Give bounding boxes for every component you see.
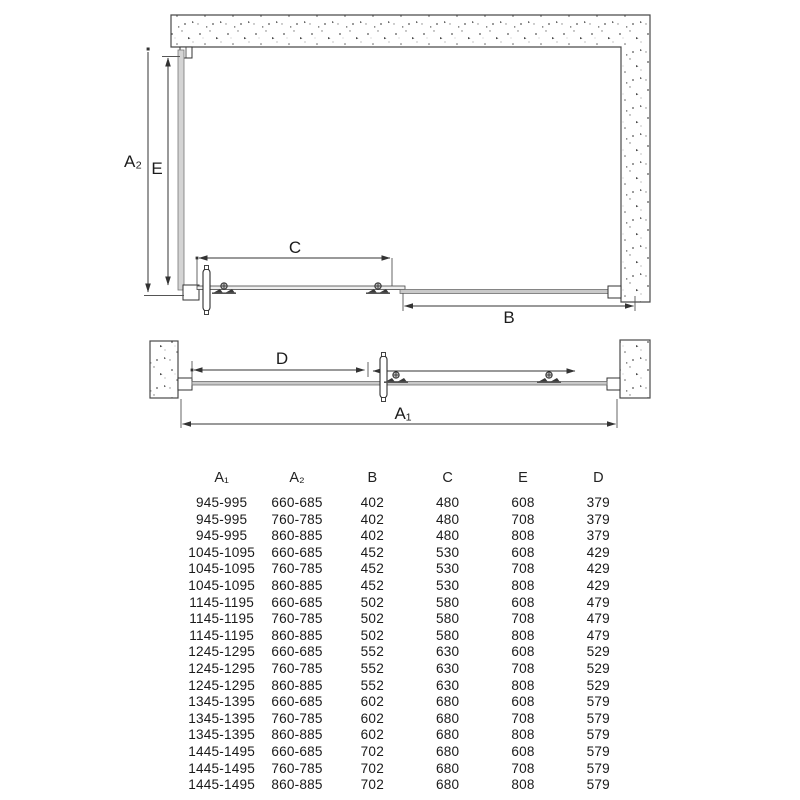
table-row: 1045-1095860-885452530808429: [184, 578, 636, 595]
table-body: 945-995660-685402480608379945-995760-785…: [184, 495, 636, 794]
table-cell: 860-885: [259, 777, 334, 794]
table-cell: 702: [335, 744, 410, 761]
table-cell: 579: [561, 727, 636, 744]
dim-tick: [191, 369, 194, 372]
table-cell: 860-885: [259, 578, 334, 595]
table-cell: 1445-1495: [184, 744, 259, 761]
table-row: 945-995860-885402480808379: [184, 528, 636, 545]
door-handle-icon: [380, 353, 387, 402]
table-row: 1245-1295860-885552630808529: [184, 678, 636, 695]
table-cell: 1445-1495: [184, 777, 259, 794]
table-row: 1245-1295760-785552630708529: [184, 661, 636, 678]
table-cell: 808: [485, 777, 560, 794]
table-cell: 1245-1295: [184, 678, 259, 695]
table-cell: 945-995: [184, 495, 259, 512]
table-cell: 1345-1395: [184, 711, 259, 728]
table-row: 1445-1495660-685702680608579: [184, 744, 636, 761]
table-cell: 552: [335, 644, 410, 661]
table-cell: 452: [335, 545, 410, 562]
table-cell: 452: [335, 561, 410, 578]
table-cell: 1045-1095: [184, 545, 259, 562]
table-cell: 808: [485, 727, 560, 744]
table-cell: 429: [561, 545, 636, 562]
wall-profile-left: [178, 378, 192, 390]
table-cell: 479: [561, 628, 636, 645]
table-cell: 580: [410, 628, 485, 645]
table-cell: 680: [410, 727, 485, 744]
table-cell: 630: [410, 661, 485, 678]
table-row: 1445-1495860-885702680808579: [184, 777, 636, 794]
table-cell: 660-685: [259, 595, 334, 612]
table-row: 1345-1395660-685602680608579: [184, 694, 636, 711]
table-row: 1145-1195760-785502580708479: [184, 611, 636, 628]
table-cell: 530: [410, 578, 485, 595]
table-row: 1145-1195660-685502580608479: [184, 595, 636, 612]
table-cell: 579: [561, 744, 636, 761]
table-cell: 680: [410, 777, 485, 794]
table-cell: 402: [335, 512, 410, 529]
table-cell: 602: [335, 694, 410, 711]
table-row: 1245-1295660-685552630608529: [184, 644, 636, 661]
table-cell: 1045-1095: [184, 561, 259, 578]
table-cell: 680: [410, 744, 485, 761]
table-cell: 702: [335, 761, 410, 778]
table-cell: 480: [410, 512, 485, 529]
table-cell: 1245-1295: [184, 644, 259, 661]
table-cell: 1345-1395: [184, 694, 259, 711]
table-cell: 660-685: [259, 744, 334, 761]
table-cell: 708: [485, 761, 560, 778]
table-cell: 402: [335, 495, 410, 512]
table-cell: 808: [485, 528, 560, 545]
table-cell: 580: [410, 611, 485, 628]
table-cell: 379: [561, 528, 636, 545]
table-cell: 602: [335, 711, 410, 728]
table-header-row: A₁A₂BCED: [184, 468, 636, 488]
table-cell: 708: [485, 711, 560, 728]
table-cell: 708: [485, 512, 560, 529]
table-cell: 808: [485, 678, 560, 695]
table-cell: 680: [410, 694, 485, 711]
table-cell: 480: [410, 528, 485, 545]
table-cell: 760-785: [259, 561, 334, 578]
dim-label-e: E: [151, 159, 162, 178]
table-cell: 945-995: [184, 512, 259, 529]
table-cell: 760-785: [259, 512, 334, 529]
table-header-cell: B: [335, 470, 410, 486]
table-row: 1145-1195860-885502580808479: [184, 628, 636, 645]
table-header-cell: A₂: [259, 470, 334, 486]
table-cell: 480: [410, 495, 485, 512]
table-cell: 860-885: [259, 678, 334, 695]
table-row: 945-995760-785402480708379: [184, 512, 636, 529]
table-cell: 529: [561, 644, 636, 661]
table-cell: 860-885: [259, 528, 334, 545]
table-cell: 479: [561, 611, 636, 628]
table-cell: 580: [410, 595, 485, 612]
table-cell: 760-785: [259, 661, 334, 678]
table-cell: 479: [561, 595, 636, 612]
drawing-area: A₂ E C B: [0, 0, 800, 460]
table-cell: 630: [410, 678, 485, 695]
table-cell: 579: [561, 777, 636, 794]
table-cell: 660-685: [259, 694, 334, 711]
table-cell: 502: [335, 628, 410, 645]
table-cell: 608: [485, 644, 560, 661]
table-cell: 529: [561, 678, 636, 695]
table-cell: 379: [561, 512, 636, 529]
table-cell: 860-885: [259, 727, 334, 744]
table-row: 945-995660-685402480608379: [184, 495, 636, 512]
table-cell: 808: [485, 628, 560, 645]
table-cell: 608: [485, 595, 560, 612]
table-cell: 602: [335, 727, 410, 744]
dim-tick: [147, 48, 150, 51]
wall-section-left: [150, 341, 178, 398]
table-cell: 379: [561, 495, 636, 512]
wall-profile-right: [607, 378, 620, 390]
dim-tick: [196, 257, 199, 260]
dimensions-table: A₁A₂BCED 945-995660-685402480608379945-9…: [184, 468, 636, 794]
table-cell: 608: [485, 744, 560, 761]
table-cell: 452: [335, 578, 410, 595]
table-cell: 760-785: [259, 761, 334, 778]
table-cell: 402: [335, 528, 410, 545]
table-cell: 808: [485, 578, 560, 595]
table-row: 1345-1395860-885602680808579: [184, 727, 636, 744]
table-cell: 1245-1295: [184, 661, 259, 678]
table-header-cell: C: [410, 470, 485, 486]
table-cell: 579: [561, 761, 636, 778]
side-glass-panel: [178, 50, 184, 290]
door-handle-icon: [203, 266, 210, 315]
table-cell: 945-995: [184, 528, 259, 545]
dim-label-b: B: [503, 308, 514, 327]
wall-profile-right: [608, 286, 621, 298]
table-cell: 1345-1395: [184, 727, 259, 744]
table-cell: 552: [335, 678, 410, 695]
table-cell: 660-685: [259, 644, 334, 661]
table-cell: 530: [410, 545, 485, 562]
table-cell: 708: [485, 661, 560, 678]
table-cell: 529: [561, 661, 636, 678]
table-row: 1445-1495760-785702680708579: [184, 761, 636, 778]
table-cell: 1145-1195: [184, 628, 259, 645]
table-cell: 608: [485, 545, 560, 562]
dim-label-a2: A₂: [124, 152, 142, 171]
table-cell: 1145-1195: [184, 611, 259, 628]
table-cell: 708: [485, 611, 560, 628]
fixed-glass-panel: [400, 290, 608, 294]
dim-label-a1: A₁: [394, 404, 411, 423]
table-row: 1045-1095760-785452530708429: [184, 561, 636, 578]
wall-section: [171, 15, 650, 302]
wall-section-right: [620, 340, 650, 398]
table-cell: 579: [561, 694, 636, 711]
dim-label-d: D: [276, 349, 288, 368]
table-cell: 760-785: [259, 711, 334, 728]
table-header-cell: E: [485, 470, 560, 486]
table-cell: 502: [335, 595, 410, 612]
table-cell: 1045-1095: [184, 578, 259, 595]
table-cell: 530: [410, 561, 485, 578]
table-cell: 680: [410, 761, 485, 778]
table-cell: 429: [561, 561, 636, 578]
table-cell: 608: [485, 694, 560, 711]
table-cell: 680: [410, 711, 485, 728]
table-cell: 608: [485, 495, 560, 512]
table-row: 1345-1395760-785602680708579: [184, 711, 636, 728]
table-cell: 660-685: [259, 495, 334, 512]
dim-label-c: C: [289, 238, 301, 257]
table-cell: 702: [335, 777, 410, 794]
table-cell: 660-685: [259, 545, 334, 562]
table-cell: 429: [561, 578, 636, 595]
table-header-cell: D: [561, 470, 636, 486]
plan-view-diagram: A₂ E C B: [124, 15, 650, 327]
table-cell: 630: [410, 644, 485, 661]
table-cell: 502: [335, 611, 410, 628]
table-cell: 708: [485, 561, 560, 578]
table-cell: 579: [561, 711, 636, 728]
table-cell: 552: [335, 661, 410, 678]
table-header-cell: A₁: [184, 470, 259, 486]
table-cell: 860-885: [259, 628, 334, 645]
technical-drawing-page: A₂ E C B: [0, 0, 800, 800]
sliding-door-panel: [197, 286, 405, 290]
table-cell: 760-785: [259, 611, 334, 628]
table-row: 1045-1095660-685452530608429: [184, 545, 636, 562]
table-cell: 1145-1195: [184, 595, 259, 612]
table-cell: 1445-1495: [184, 761, 259, 778]
niche-view-diagram: D A₁: [150, 340, 650, 428]
